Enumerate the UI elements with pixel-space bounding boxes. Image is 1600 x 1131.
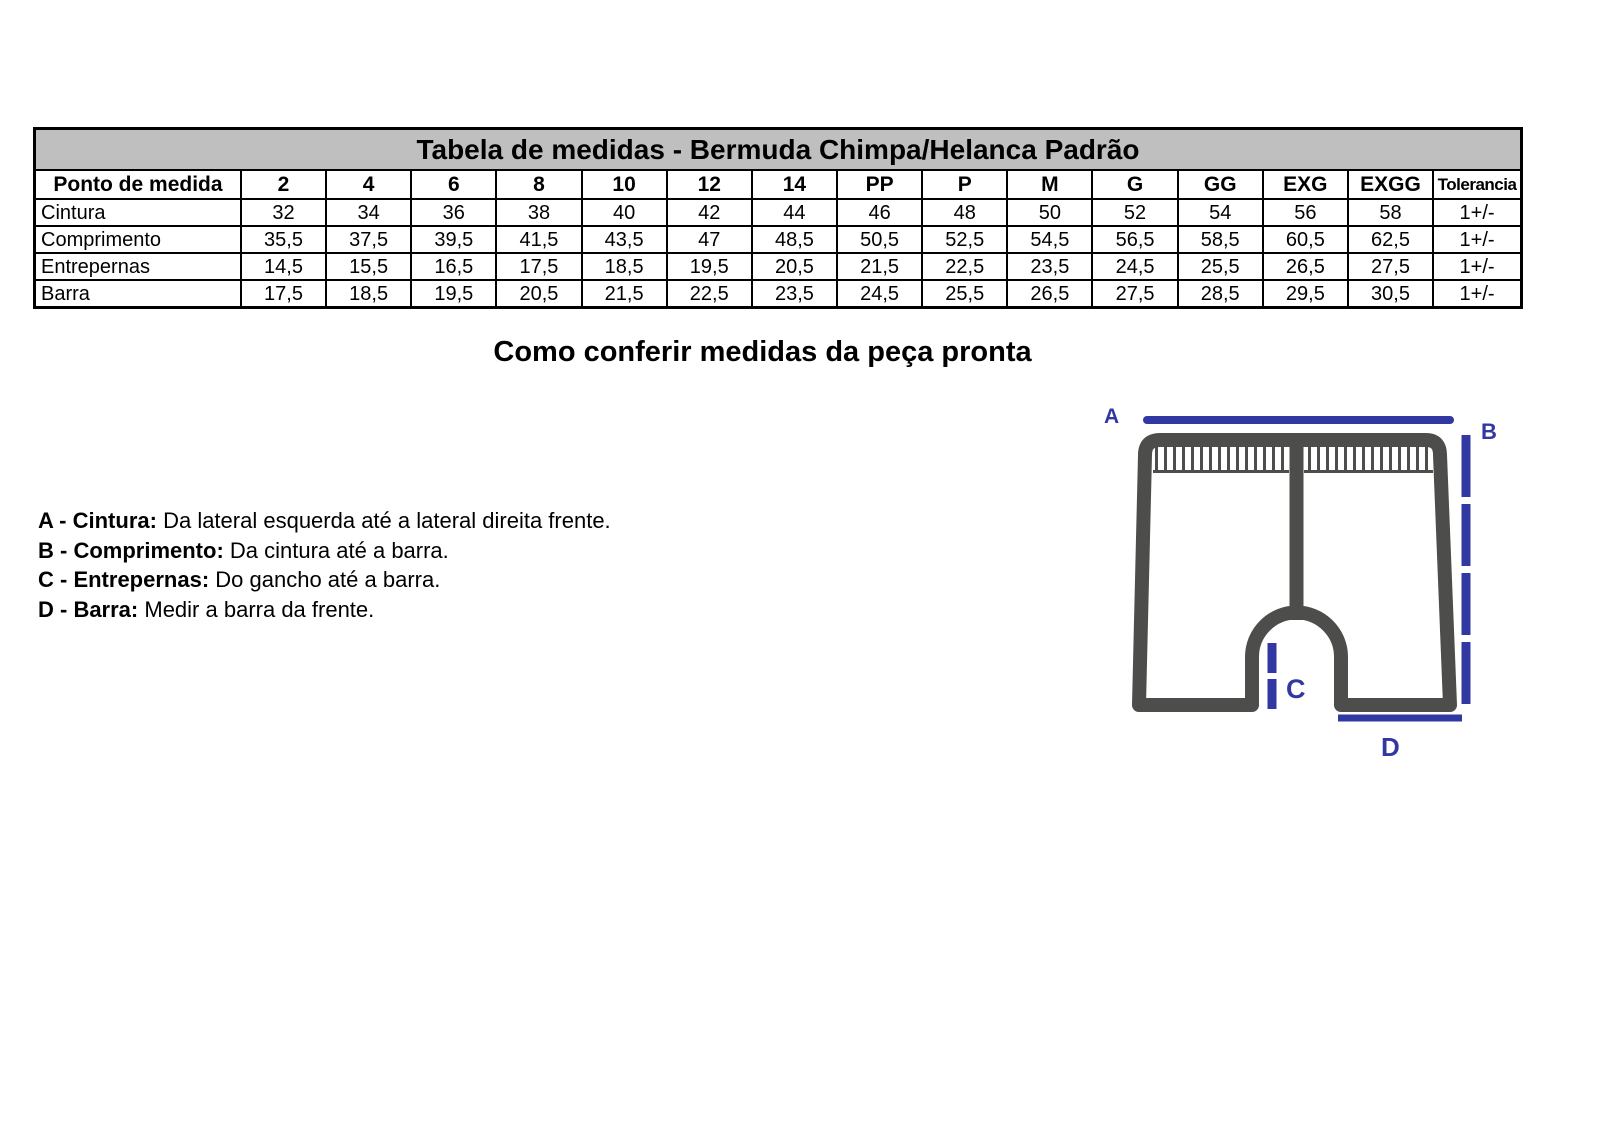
table-row-barra: Barra 17,5 18,5 19,5 20,5 21,5 22,5 23,5… — [35, 280, 1522, 308]
cell: 54,5 — [1007, 226, 1092, 253]
cell: 44 — [752, 199, 837, 226]
cell: 36 — [411, 199, 496, 226]
cell: 50 — [1007, 199, 1092, 226]
table-row-entrepernas: Entrepernas 14,5 15,5 16,5 17,5 18,5 19,… — [35, 253, 1522, 280]
cell: 35,5 — [241, 226, 326, 253]
row-label: Cintura — [35, 199, 241, 226]
cell: 24,5 — [837, 280, 922, 308]
cell: 48 — [922, 199, 1007, 226]
legend-item-c: C - Entrepernas: Do gancho até a barra. — [38, 565, 611, 595]
legend-item-b: B - Comprimento: Da cintura até a barra. — [38, 536, 611, 566]
diagram-label-c: C — [1286, 674, 1306, 704]
cell: 17,5 — [496, 253, 581, 280]
column-header-gg: GG — [1178, 170, 1263, 199]
cell: 1+/- — [1433, 199, 1521, 226]
cell: 26,5 — [1007, 280, 1092, 308]
table-row-cintura: Cintura 32 34 36 38 40 42 44 46 48 50 52… — [35, 199, 1522, 226]
column-header-exg: EXG — [1263, 170, 1348, 199]
row-label: Barra — [35, 280, 241, 308]
row-label: Entrepernas — [35, 253, 241, 280]
cell: 48,5 — [752, 226, 837, 253]
cell: 21,5 — [837, 253, 922, 280]
row-label: Comprimento — [35, 226, 241, 253]
diagram-label-a: A — [1104, 405, 1119, 428]
shorts-diagram: A B C D — [1080, 385, 1500, 770]
cell: 22,5 — [922, 253, 1007, 280]
cell: 27,5 — [1348, 253, 1433, 280]
column-header-14: 14 — [752, 170, 837, 199]
cell: 20,5 — [496, 280, 581, 308]
legend-term: A - Cintura: — [38, 508, 157, 533]
cell: 60,5 — [1263, 226, 1348, 253]
size-table: Tabela de medidas - Bermuda Chimpa/Helan… — [33, 127, 1523, 309]
column-header-tolerancia: Tolerancia — [1433, 170, 1521, 199]
cell: 39,5 — [411, 226, 496, 253]
cell: 37,5 — [326, 226, 411, 253]
legend-description: Da lateral esquerda até a lateral direit… — [163, 508, 611, 533]
diagram-label-b: B — [1481, 419, 1497, 444]
cell: 54 — [1178, 199, 1263, 226]
waistband-rib-left — [1153, 447, 1289, 470]
column-header-12: 12 — [667, 170, 752, 199]
cell: 46 — [837, 199, 922, 226]
cell: 47 — [667, 226, 752, 253]
cell: 62,5 — [1348, 226, 1433, 253]
section-heading: Como conferir medidas da peça pronta — [0, 336, 1525, 369]
cell: 26,5 — [1263, 253, 1348, 280]
cell: 23,5 — [1007, 253, 1092, 280]
legend-item-d: D - Barra: Medir a barra da frente. — [38, 595, 611, 625]
column-header-10: 10 — [582, 170, 667, 199]
cell: 21,5 — [582, 280, 667, 308]
column-header-pp: PP — [837, 170, 922, 199]
column-header-g: G — [1092, 170, 1177, 199]
legend-term: B - Comprimento: — [38, 538, 224, 563]
cell: 25,5 — [1178, 253, 1263, 280]
column-header-p: P — [922, 170, 1007, 199]
column-header-ponto: Ponto de medida — [35, 170, 241, 199]
table-row-comprimento: Comprimento 35,5 37,5 39,5 41,5 43,5 47 … — [35, 226, 1522, 253]
cell: 43,5 — [582, 226, 667, 253]
cell: 18,5 — [582, 253, 667, 280]
column-header-6: 6 — [411, 170, 496, 199]
legend-description: Medir a barra da frente. — [144, 597, 374, 622]
cell: 15,5 — [326, 253, 411, 280]
legend-term: C - Entrepernas: — [38, 567, 209, 592]
cell: 25,5 — [922, 280, 1007, 308]
cell: 14,5 — [241, 253, 326, 280]
cell: 16,5 — [411, 253, 496, 280]
waistband-rib-right — [1304, 447, 1433, 470]
cell: 19,5 — [411, 280, 496, 308]
legend-description: Do gancho até a barra. — [215, 567, 440, 592]
cell: 29,5 — [1263, 280, 1348, 308]
column-header-m: M — [1007, 170, 1092, 199]
cell: 23,5 — [752, 280, 837, 308]
cell: 24,5 — [1092, 253, 1177, 280]
cell: 41,5 — [496, 226, 581, 253]
size-chart-document: Tabela de medidas - Bermuda Chimpa/Helan… — [0, 0, 1600, 1131]
cell: 28,5 — [1178, 280, 1263, 308]
cell: 1+/- — [1433, 280, 1521, 308]
diagram-label-d: D — [1381, 732, 1400, 762]
table-header-row: Ponto de medida 2 4 6 8 10 12 14 PP P M … — [35, 170, 1522, 199]
table-title: Tabela de medidas - Bermuda Chimpa/Helan… — [35, 129, 1522, 171]
column-header-8: 8 — [496, 170, 581, 199]
column-header-2: 2 — [241, 170, 326, 199]
cell: 17,5 — [241, 280, 326, 308]
cell: 34 — [326, 199, 411, 226]
cell: 50,5 — [837, 226, 922, 253]
cell: 56,5 — [1092, 226, 1177, 253]
legend-item-a: A - Cintura: Da lateral esquerda até a l… — [38, 506, 611, 536]
column-header-exgg: EXGG — [1348, 170, 1433, 199]
cell: 1+/- — [1433, 253, 1521, 280]
measurement-legend: A - Cintura: Da lateral esquerda até a l… — [38, 506, 611, 624]
cell: 58,5 — [1178, 226, 1263, 253]
legend-description: Da cintura até a barra. — [230, 538, 449, 563]
cell: 42 — [667, 199, 752, 226]
cell: 27,5 — [1092, 280, 1177, 308]
cell: 20,5 — [752, 253, 837, 280]
cell: 58 — [1348, 199, 1433, 226]
cell: 40 — [582, 199, 667, 226]
cell: 19,5 — [667, 253, 752, 280]
cell: 30,5 — [1348, 280, 1433, 308]
cell: 52 — [1092, 199, 1177, 226]
cell: 1+/- — [1433, 226, 1521, 253]
cell: 38 — [496, 199, 581, 226]
cell: 22,5 — [667, 280, 752, 308]
cell: 32 — [241, 199, 326, 226]
cell: 18,5 — [326, 280, 411, 308]
table-title-row: Tabela de medidas - Bermuda Chimpa/Helan… — [35, 129, 1522, 171]
shorts-diagram-svg: A B C D — [1080, 385, 1500, 770]
cell: 52,5 — [922, 226, 1007, 253]
legend-term: D - Barra: — [38, 597, 138, 622]
cell: 56 — [1263, 199, 1348, 226]
column-header-4: 4 — [326, 170, 411, 199]
